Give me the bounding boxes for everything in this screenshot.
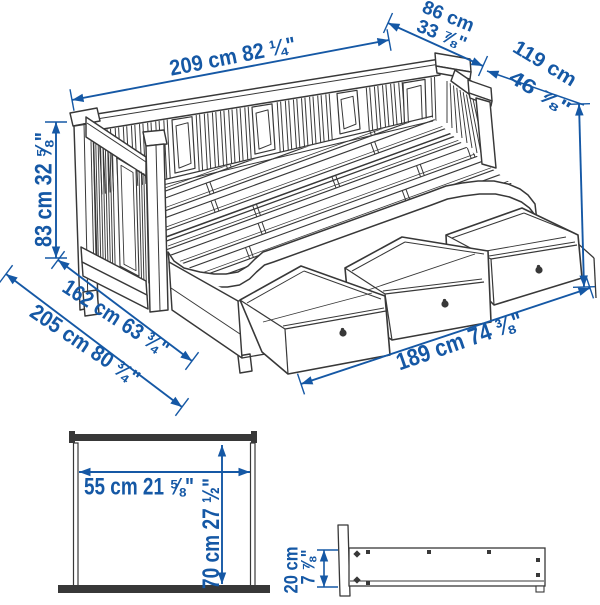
svg-text:70 cm 27 ½": 70 cm 27 ½" [198,478,225,589]
svg-text:7 ⅞": 7 ⅞" [298,550,320,585]
svg-text:55 cm 21 ⅝": 55 cm 21 ⅝" [84,474,194,501]
svg-text:83 cm 32 ⅝": 83 cm 32 ⅝" [31,132,58,247]
